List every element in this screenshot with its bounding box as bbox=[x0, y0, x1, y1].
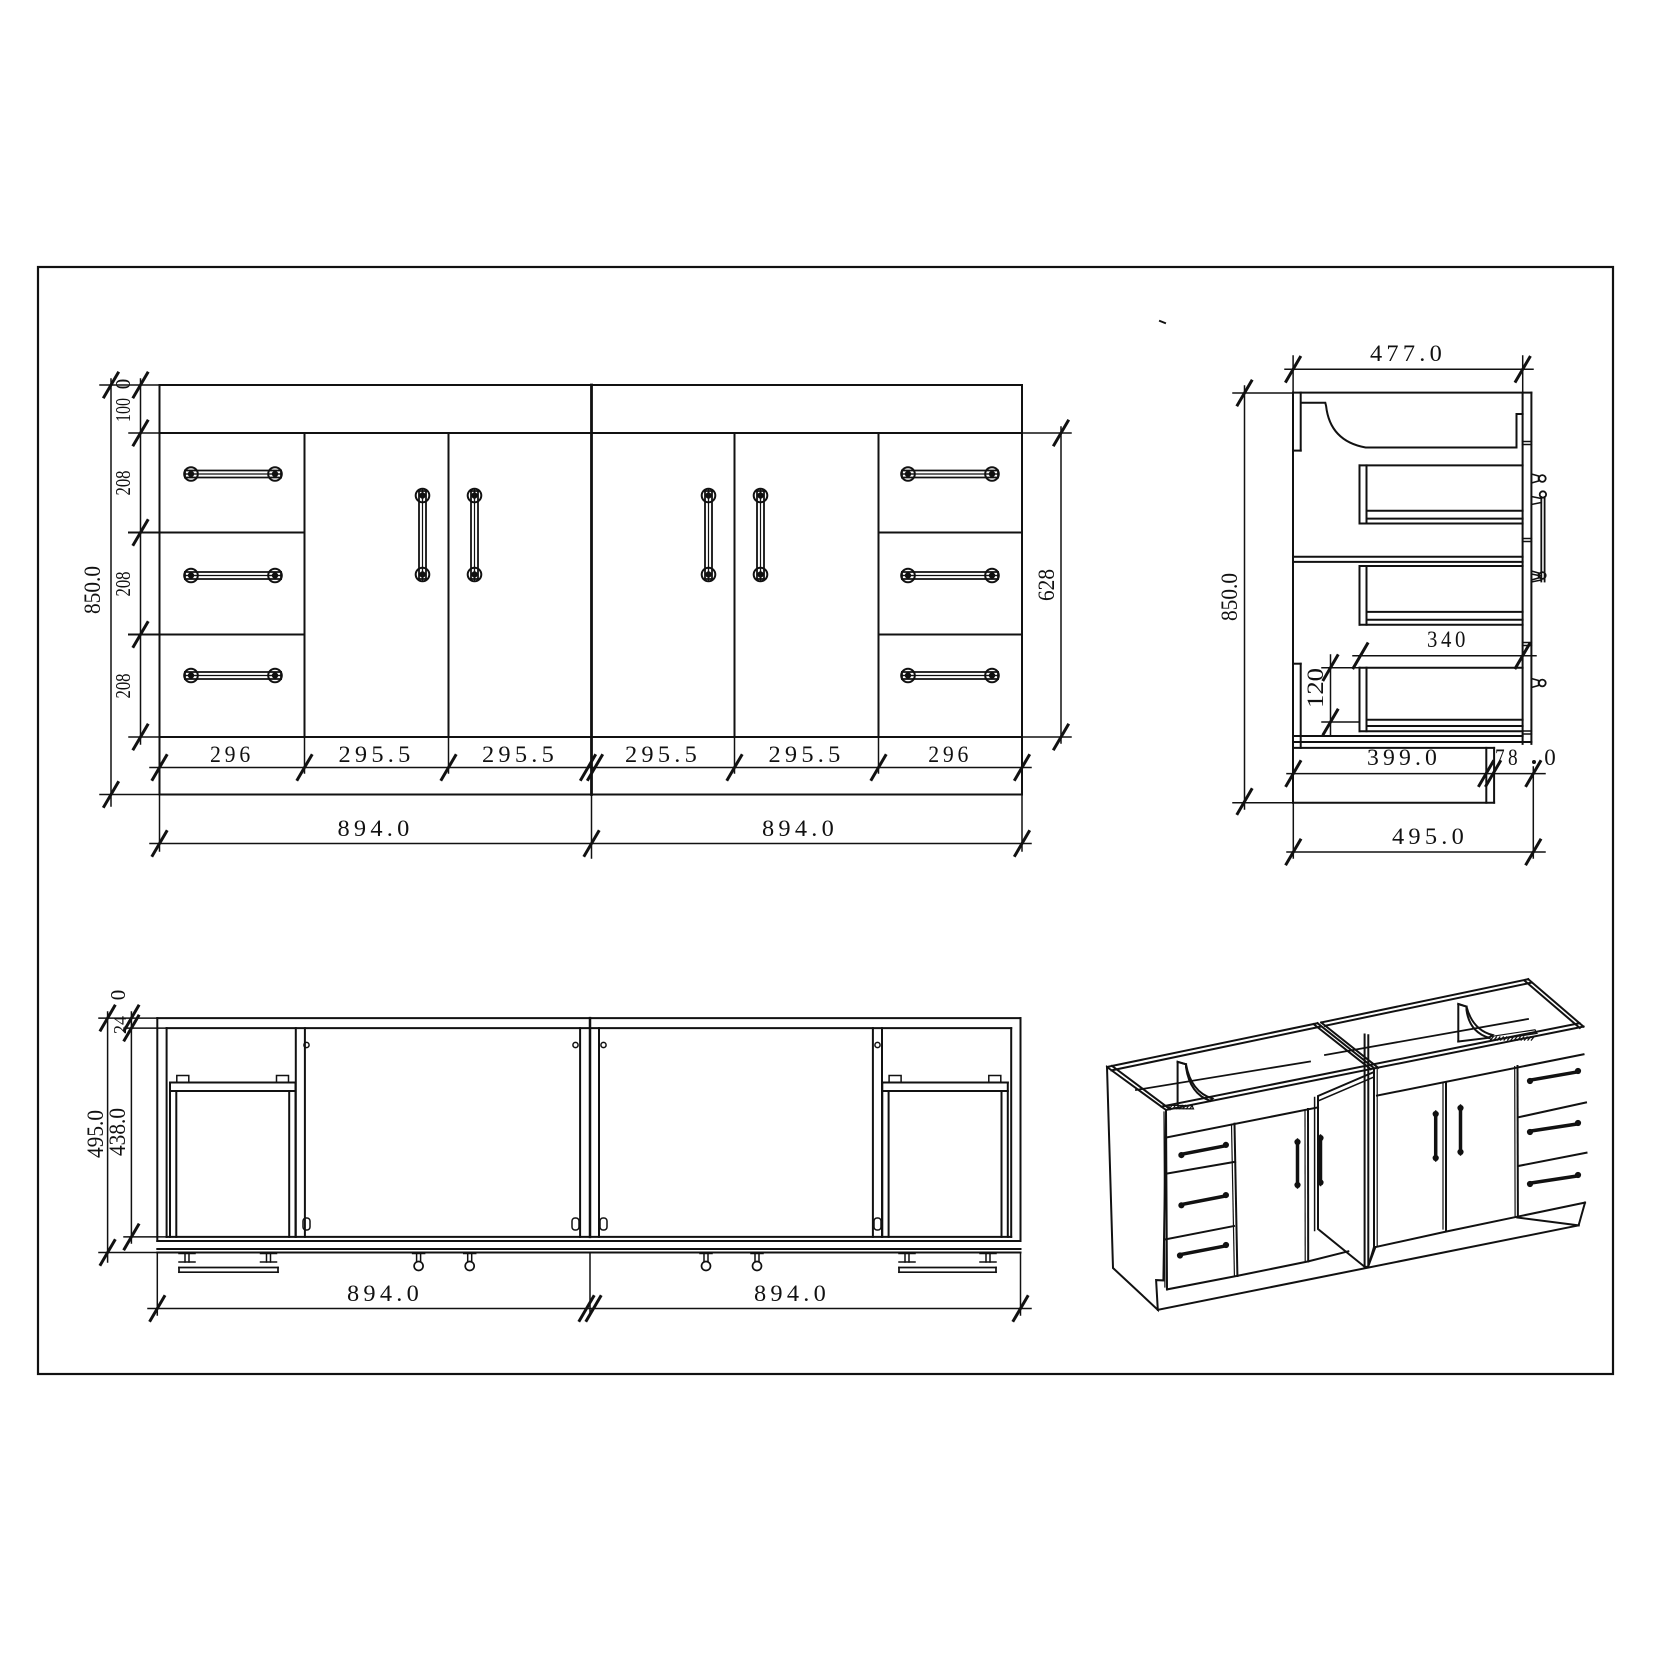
svg-text:399.0: 399.0 bbox=[1367, 745, 1441, 770]
svg-text:120: 120 bbox=[1303, 668, 1328, 708]
svg-text:894.0: 894.0 bbox=[754, 1281, 830, 1306]
svg-text:0: 0 bbox=[1544, 745, 1560, 770]
svg-text:850.0: 850.0 bbox=[80, 566, 105, 614]
svg-text:0: 0 bbox=[111, 379, 135, 390]
svg-text:340: 340 bbox=[1427, 627, 1469, 652]
svg-text:100: 100 bbox=[111, 398, 135, 422]
svg-text:477.0: 477.0 bbox=[1370, 341, 1446, 366]
svg-text:0: 0 bbox=[106, 990, 130, 1001]
svg-text:295.5: 295.5 bbox=[625, 742, 701, 767]
svg-text:296: 296 bbox=[210, 742, 254, 767]
svg-text:208: 208 bbox=[111, 471, 135, 496]
svg-text:208: 208 bbox=[111, 572, 135, 597]
svg-text:295.5: 295.5 bbox=[769, 742, 845, 767]
svg-text:295.5: 295.5 bbox=[339, 742, 415, 767]
svg-text:628: 628 bbox=[1034, 569, 1059, 601]
svg-text:894.0: 894.0 bbox=[347, 1281, 423, 1306]
svg-text:24: 24 bbox=[110, 1016, 130, 1034]
svg-text:78: 78 bbox=[1495, 745, 1521, 770]
svg-text:296: 296 bbox=[928, 742, 972, 767]
svg-text:438.0: 438.0 bbox=[105, 1108, 130, 1156]
svg-text:295.5: 295.5 bbox=[482, 742, 558, 767]
svg-text:894.0: 894.0 bbox=[762, 816, 838, 841]
svg-text:850.0: 850.0 bbox=[1217, 573, 1242, 621]
svg-text:208: 208 bbox=[111, 674, 135, 699]
svg-text:894.0: 894.0 bbox=[338, 816, 414, 841]
svg-text:495.0: 495.0 bbox=[1392, 824, 1468, 849]
